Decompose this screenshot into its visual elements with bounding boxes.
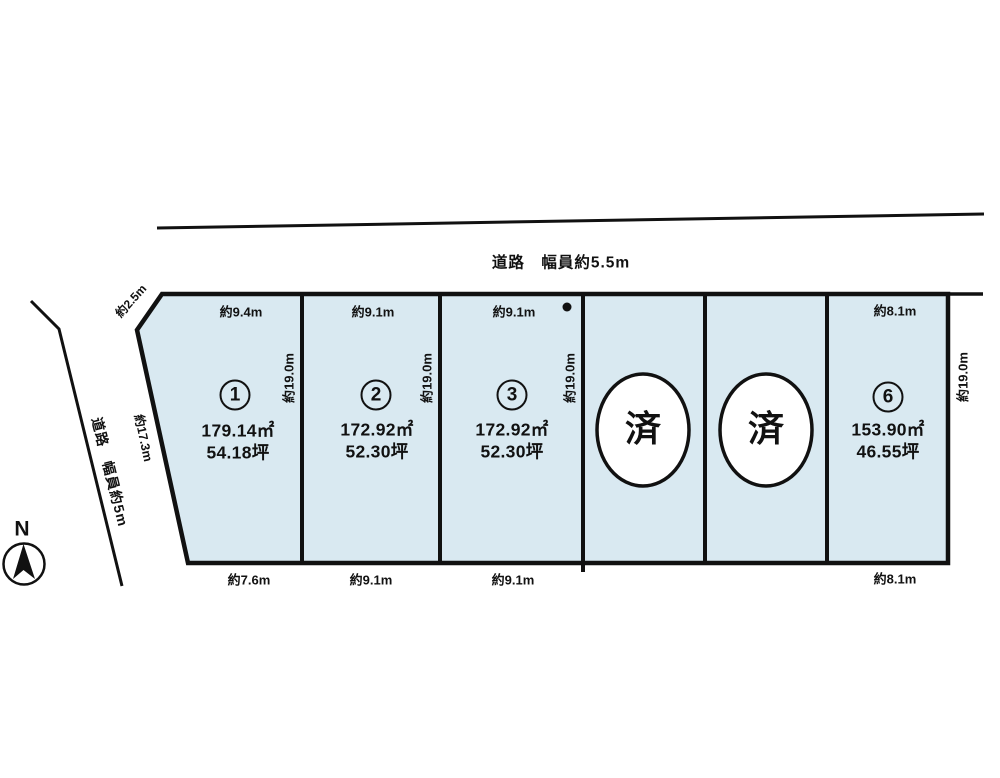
plot-1-width-bottom-label: 約7.6m <box>228 574 271 587</box>
plot-6-area-tsubo-label: 46.55坪 <box>856 443 919 461</box>
plot-6-width-bottom-label: 約8.1m <box>874 573 917 586</box>
plot-2-area-tsubo-label: 52.30坪 <box>345 443 408 461</box>
plot-2-width-top-label: 約9.1m <box>352 306 395 319</box>
plot-2-number-badge: 2 <box>361 380 392 411</box>
plot-3-depth-label: 約19.0m <box>564 353 577 403</box>
top-road-line <box>157 214 984 228</box>
plot-3-area-tsubo-label: 52.30坪 <box>480 443 543 461</box>
plot-4-sold-label: 済 <box>625 411 661 447</box>
plot-6-width-top-label: 約8.1m <box>874 305 917 318</box>
plot-1-width-top-label: 約9.4m <box>220 306 263 319</box>
plot-6-depth-label: 約19.0m <box>957 352 970 402</box>
plot-3-number-badge: 3 <box>497 380 528 411</box>
compass-north-label: N <box>14 519 29 540</box>
land-plot-diagram: 道路 幅員約5.5m 道路 幅員約5m 約2.5m 約17.3m N 約9.4m… <box>0 0 1000 778</box>
plot-6-area-m2-label: 153.90㎡ <box>851 421 924 439</box>
plot-3-width-top-label: 約9.1m <box>493 306 536 319</box>
survey-point-dot <box>563 303 572 312</box>
plot-3-width-bottom-label: 約9.1m <box>492 574 535 587</box>
plot-2-area-m2-label: 172.92㎡ <box>340 421 413 439</box>
plot-1-area-m2-label: 179.14㎡ <box>201 422 274 440</box>
plot-2-depth-label: 約19.0m <box>421 353 434 403</box>
plot-6-number-badge: 6 <box>873 382 904 413</box>
plot-1-depth-label: 約19.0m <box>283 353 296 403</box>
plot-1-area-tsubo-label: 54.18坪 <box>206 444 269 462</box>
plot-3-area-m2-label: 172.92㎡ <box>475 421 548 439</box>
plot-5-sold-label: 済 <box>748 411 784 447</box>
top-road-label: 道路 幅員約5.5m <box>492 255 630 271</box>
plot-2-width-bottom-label: 約9.1m <box>350 574 393 587</box>
plot-1-number-badge: 1 <box>220 380 251 411</box>
